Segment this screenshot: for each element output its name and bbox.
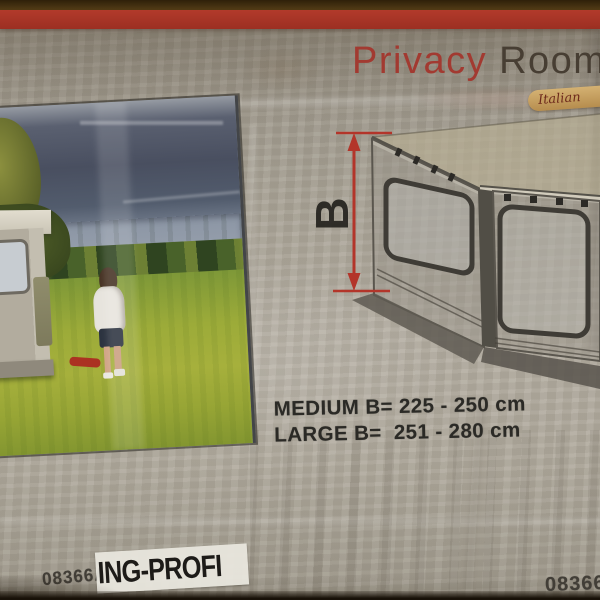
stain-mark [238, 46, 328, 92]
photo-awning-window [0, 239, 31, 296]
wrap-texture [250, 430, 600, 595]
drawing-front-window [500, 206, 588, 337]
table-edge-band [0, 0, 600, 10]
lifestyle-photo [0, 95, 256, 456]
drawing-front-panel [493, 191, 600, 361]
title-word-privacy: Privacy [352, 40, 487, 82]
dimension-letter: B [309, 191, 355, 237]
size-spec-block: MEDIUM B= 225 - 250 cm LARGE B= 251 - 28… [273, 392, 526, 449]
drawing-left-rail [372, 137, 480, 195]
title-word-room: Room [499, 40, 600, 82]
rail-tabs [395, 148, 588, 207]
drawing-side-window [386, 178, 472, 275]
drawing-left-skirt [352, 293, 484, 364]
box-bottom-edge [0, 591, 600, 600]
drawing-right-skirt [481, 347, 600, 389]
size-medium: MEDIUM B= 225 - 250 cm [273, 392, 525, 420]
badge-script-text: Italian [538, 90, 582, 108]
drawing-front-rail [480, 186, 600, 203]
product-title: PrivacyRoom [352, 40, 600, 83]
drawing-side-panel [372, 139, 484, 347]
red-stripe [0, 10, 600, 29]
photo-plastic-glare [80, 121, 223, 125]
awning-box-photo: PrivacyRoom Italian [0, 0, 600, 600]
drawing-corner-post [478, 189, 497, 348]
size-large: LARGE B= 251 - 280 cm [274, 418, 526, 446]
